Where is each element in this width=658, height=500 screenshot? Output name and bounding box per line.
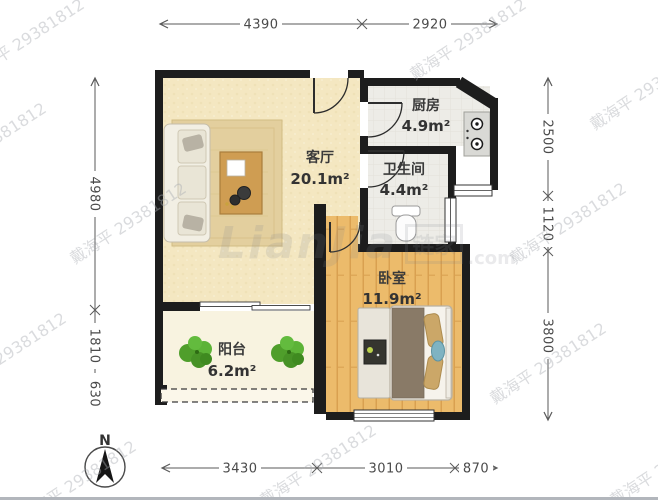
stove [464, 112, 490, 156]
kitchen-furniture [464, 112, 490, 156]
dim-left-1: 4980 [86, 176, 101, 211]
coffee-table [220, 152, 262, 214]
living-room-name: 客厅 [305, 149, 334, 166]
bedroom-window [354, 410, 434, 421]
dim-top-1: 4390 [243, 18, 278, 33]
north-label: N [99, 433, 111, 449]
bedroom-furniture [358, 306, 452, 400]
bathroom-window [445, 198, 456, 242]
bed [390, 306, 452, 400]
dim-right-1: 2500 [539, 119, 554, 154]
compass: N [85, 433, 125, 487]
floorplan-canvas: 4390 2920 3430 3010 870 4980 1810 630 25… [0, 0, 658, 500]
bed-cushion [432, 341, 445, 361]
tv [364, 340, 386, 364]
bedroom-area: 11.9m² [362, 290, 421, 308]
balcony-name: 阳台 [218, 341, 246, 358]
dim-right-2: 1120 [539, 206, 554, 241]
kitchen-area: 4.9m² [402, 117, 451, 135]
dim-top-2: 2920 [412, 18, 447, 33]
table-book [227, 160, 245, 176]
bedroom-name: 卧室 [378, 270, 406, 287]
tv-stand [358, 308, 390, 398]
bed-blanket [392, 308, 424, 398]
dim-bottom-3: 870 [463, 462, 489, 477]
balcony-open-edge [161, 389, 313, 402]
sofa [164, 124, 210, 242]
dim-bottom-2: 3010 [368, 462, 403, 477]
bed-headboard [446, 308, 451, 398]
living-room-area: 20.1m² [290, 170, 349, 188]
dim-bottom-1: 3430 [222, 462, 257, 477]
bathroom-name: 卫生间 [383, 161, 425, 178]
dim-right-3: 3800 [539, 318, 554, 353]
bathroom-area: 4.4m² [380, 181, 429, 199]
kitchen-name: 厨房 [412, 97, 440, 114]
dim-left-3: 630 [86, 381, 101, 407]
balcony-area: 6.2m² [208, 362, 257, 380]
north-needle-icon [96, 449, 114, 483]
dim-left-2: 1810 [86, 328, 101, 363]
living-room-furniture [164, 120, 282, 246]
floorplan-drawing: 4390 2920 3430 3010 870 4980 1810 630 25… [0, 0, 658, 500]
kitchen-window [454, 185, 492, 196]
